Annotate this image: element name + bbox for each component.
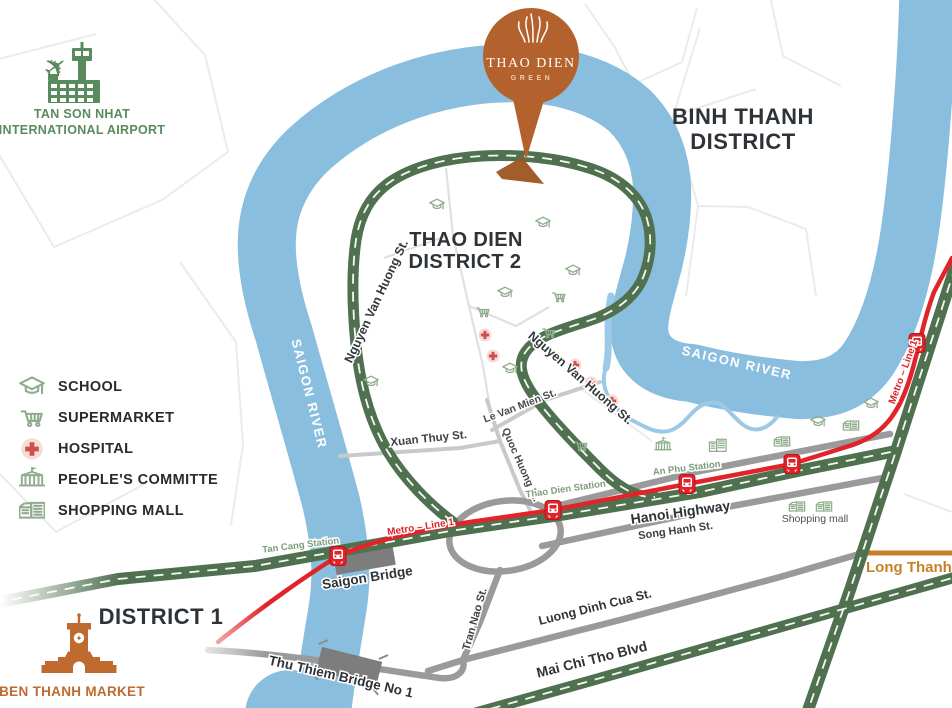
metro-station-icon [679,475,695,494]
legend-item-shopping-mall: SHOPPING MALL [16,495,218,526]
legend: SCHOOL SUPERMARKET HOSPITAL PEOPLE'S COM… [16,371,218,526]
school-icon [566,265,580,275]
metro-station-icon [330,547,346,566]
school-icon [498,287,512,297]
school-icon [16,374,48,400]
hospital-icon [487,350,500,363]
label-thao-dien-line1: THAO DIEN [409,229,523,251]
mall-icon [789,502,804,511]
building-icon [709,439,726,451]
legend-label: PEOPLE'S COMMITTE [58,472,218,488]
metro-station-icon [545,501,561,520]
legend-label: HOSPITAL [58,441,133,457]
legend-label: SCHOOL [58,379,122,395]
peoples-committe-icon [16,467,48,493]
shopping-mall-icon [16,498,48,524]
legend-label: SUPERMARKET [58,410,174,426]
airport-icon: ✈ [37,42,100,103]
label-long-thanh: Long Thanh – D [866,559,952,576]
supermarket-icon [16,405,48,431]
school-icon [430,199,444,209]
pin-subtitle: GREEN [511,75,553,82]
label-district-1: DISTRICT 1 [99,604,224,629]
school-icon [503,363,517,373]
label-ben-thanh-market: BEN THANH MARKET [0,684,145,699]
label-binh-thanh-line1: BINH THANH [672,104,814,129]
map-canvas: BINH THANH DISTRICT THAO DIEN DISTRICT 2… [0,0,952,708]
committee-icon [655,437,671,449]
label-tran-nao: Tran Nao St. [461,587,490,652]
hospital-icon [16,436,48,462]
mall-icon [774,437,789,446]
hospital-icon [479,329,492,342]
pin-title: THAO DIEN [486,56,575,71]
label-binh-thanh-line2: DISTRICT [690,129,796,154]
label-thao-dien-line2: DISTRICT 2 [409,251,522,273]
legend-item-hospital: HOSPITAL [16,433,218,464]
label-shopping-mall: Shopping mall [782,513,849,525]
minor-roads [340,168,600,514]
thao-dien-map: BINH THANH DISTRICT THAO DIEN DISTRICT 2… [0,0,952,708]
legend-item-school: SCHOOL [16,371,218,402]
label-airport-line2: INTERNATIONAL AIRPORT [0,123,165,137]
supermarket-icon [553,293,565,302]
label-luong-dinh-cua: Luong Dinh Cua St. [537,586,653,628]
legend-label: SHOPPING MALL [58,503,184,519]
mall-icon [843,421,858,430]
legend-item-supermarket: SUPERMARKET [16,402,218,433]
school-icon [536,217,550,227]
mall-icon [816,502,831,511]
label-xuan-thuy: Xuan Thuy St. [390,429,468,449]
legend-item-peoples-committe: PEOPLE'S COMMITTE [16,464,218,495]
metro-station-icon [784,455,800,474]
label-airport-line1: TAN SON NHAT [34,107,130,121]
